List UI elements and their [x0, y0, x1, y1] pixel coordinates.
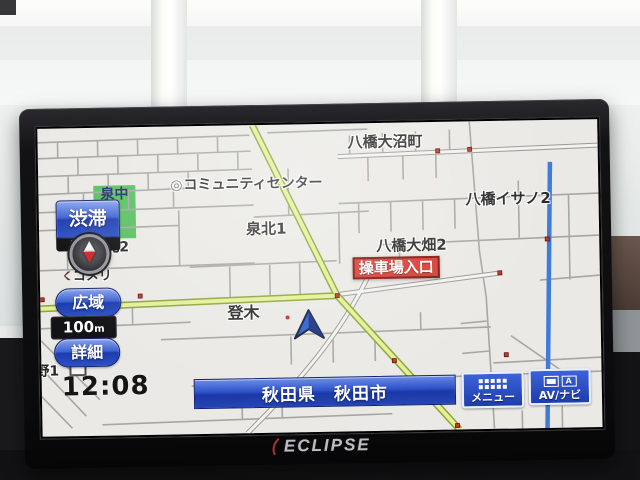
- scale-unit: m: [94, 324, 105, 335]
- zoom-in-detail-button[interactable]: 詳細: [54, 337, 120, 367]
- map-scale-display: 100m: [51, 316, 117, 340]
- menu-button-label: メニュー: [471, 389, 515, 406]
- av-navi-button-label: AV/ナビ: [539, 386, 582, 403]
- brand-logo-text: ECLIPSE: [284, 435, 371, 457]
- map-label-district: 八橋イサノ2: [465, 187, 550, 209]
- compass-needle-south: [83, 252, 95, 263]
- navigation-screen[interactable]: 八橋大沼町 ◎コミュニティセンター 泉北1 八橋イサノ2 八橋大畑2 登木 泉中…: [35, 117, 604, 439]
- navi-screen-icon: A: [561, 375, 576, 386]
- menu-button[interactable]: メニュー: [462, 371, 525, 408]
- av-navi-button[interactable]: A AV/ナビ: [529, 368, 592, 405]
- map-label-district: 泉北1: [246, 218, 287, 240]
- window-shadow-corner: [0, 0, 16, 15]
- av-screen-icon: [543, 376, 558, 387]
- scale-value: 100: [63, 318, 95, 337]
- navigation-unit: 八橋大沼町 ◎コミュニティセンター 泉北1 八橋イサノ2 八橋大畑2 登木 泉中…: [19, 99, 615, 469]
- traffic-label: 渋滞: [56, 199, 121, 238]
- map-label-district: 八橋大畑2: [376, 234, 447, 256]
- facility-icon: ◎: [170, 177, 182, 193]
- komeri-store-icon: [64, 271, 71, 280]
- clock-display: 12:08: [62, 371, 150, 403]
- menu-grid-icon: [479, 379, 507, 389]
- intersection-name-badge: 操車場入口: [353, 256, 440, 280]
- map-label-district: 登木: [227, 299, 259, 324]
- av-navi-icon: A: [543, 375, 576, 387]
- map-label-district: 野1: [35, 361, 59, 381]
- logo-swoosh-icon: [269, 438, 281, 456]
- window-glass-highlight: [0, 60, 640, 105]
- zoom-out-wide-button[interactable]: 広域: [55, 287, 121, 317]
- photo-of-car-navigation: { "device": { "brand_logo": "ECLIPSE" },…: [0, 0, 640, 480]
- compass-needle-north: [83, 241, 95, 252]
- current-location-bar: 秋田県 秋田市: [194, 375, 456, 410]
- map-label-poi: ◎コミュニティセンター: [170, 172, 323, 195]
- map-label-community-center: コミュニティセンター: [183, 175, 322, 193]
- map-label-district: 八橋大沼町: [347, 130, 422, 152]
- window-frame-top: [0, 0, 640, 26]
